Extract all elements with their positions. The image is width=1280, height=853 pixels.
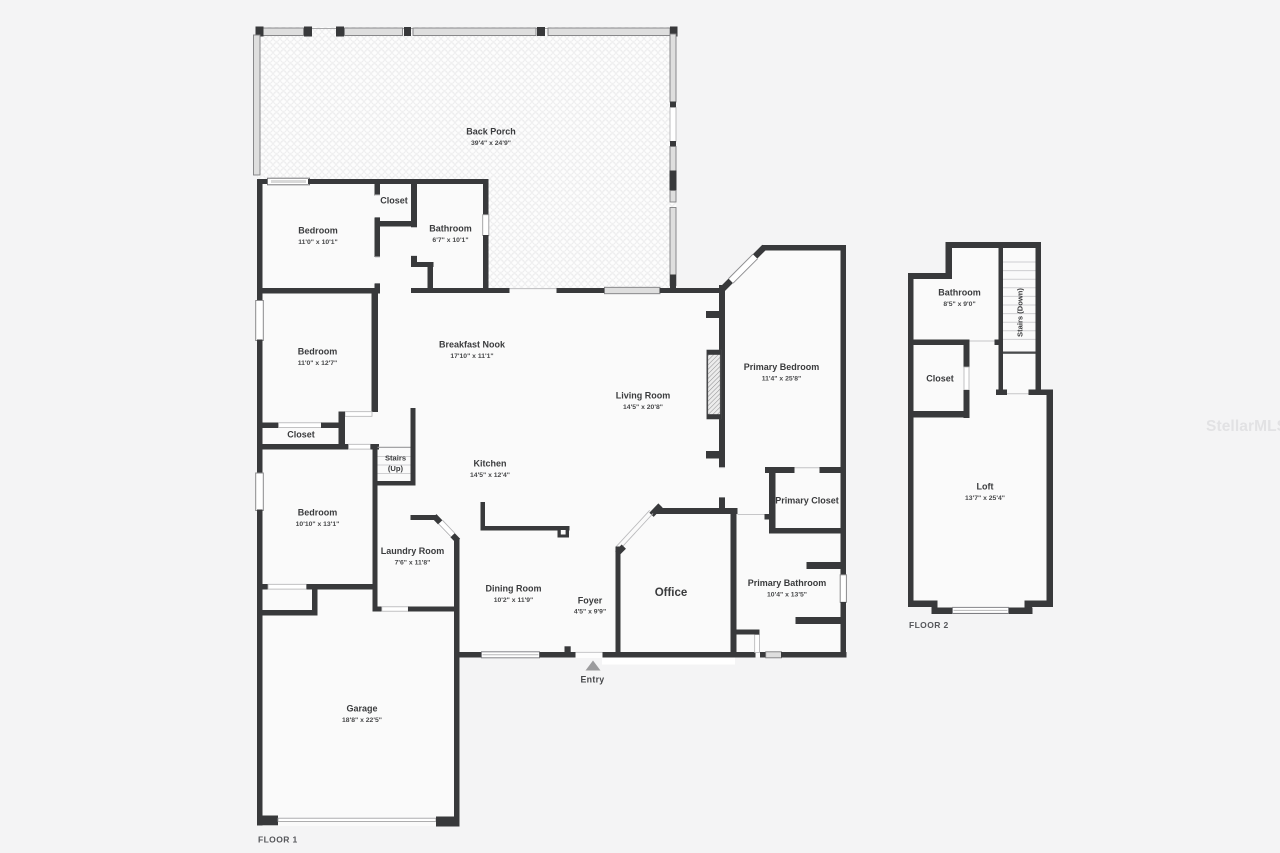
svg-text:Loft: Loft <box>977 482 994 492</box>
svg-text:14'5" x 12'4": 14'5" x 12'4" <box>470 472 510 479</box>
svg-text:10'4" x 13'5": 10'4" x 13'5" <box>767 592 807 599</box>
svg-text:11'0" x 10'1": 11'0" x 10'1" <box>298 239 338 246</box>
svg-text:Entry: Entry <box>581 675 605 685</box>
svg-text:Primary Bathroom: Primary Bathroom <box>748 578 827 588</box>
svg-text:18'8" x 22'5": 18'8" x 22'5" <box>342 717 382 724</box>
svg-text:39'4" x 24'9": 39'4" x 24'9" <box>471 140 511 147</box>
svg-text:17'10" x 11'1": 17'10" x 11'1" <box>450 353 493 360</box>
svg-text:FLOOR 1: FLOOR 1 <box>258 835 298 845</box>
svg-text:Office: Office <box>655 587 688 599</box>
svg-text:Bathroom: Bathroom <box>429 224 472 234</box>
svg-text:Foyer: Foyer <box>578 596 603 606</box>
svg-text:Closet: Closet <box>926 374 954 384</box>
svg-text:Bedroom: Bedroom <box>298 508 338 518</box>
svg-text:Bedroom: Bedroom <box>298 226 338 236</box>
svg-text:Living Room: Living Room <box>616 391 671 401</box>
svg-text:Bathroom: Bathroom <box>938 288 981 298</box>
svg-text:Garage: Garage <box>346 704 377 714</box>
svg-text:Back Porch: Back Porch <box>466 127 516 137</box>
svg-text:StellarMLS: StellarMLS <box>1206 418 1280 435</box>
svg-text:10'2" x 11'9": 10'2" x 11'9" <box>494 597 534 604</box>
svg-text:Breakfast Nook: Breakfast Nook <box>439 340 506 350</box>
svg-text:14'5" x 20'8": 14'5" x 20'8" <box>623 404 663 411</box>
svg-text:11'4" x 25'8": 11'4" x 25'8" <box>762 376 802 383</box>
svg-text:Bedroom: Bedroom <box>298 347 338 357</box>
svg-text:7'6" x 11'8": 7'6" x 11'8" <box>395 560 431 567</box>
svg-text:Dining Room: Dining Room <box>486 584 542 594</box>
svg-text:Kitchen: Kitchen <box>473 459 506 469</box>
svg-text:Stairs: Stairs <box>385 454 406 463</box>
svg-text:8'5" x 9'0": 8'5" x 9'0" <box>943 301 975 308</box>
svg-text:Primary Bedroom: Primary Bedroom <box>744 362 820 372</box>
svg-text:FLOOR 2: FLOOR 2 <box>909 620 949 630</box>
svg-text:6'7" x 10'1": 6'7" x 10'1" <box>432 237 468 244</box>
svg-text:13'7" x 25'4": 13'7" x 25'4" <box>965 495 1005 502</box>
svg-text:Laundry Room: Laundry Room <box>381 546 445 556</box>
svg-text:4'5" x 9'9": 4'5" x 9'9" <box>574 609 606 616</box>
svg-text:Closet: Closet <box>287 430 315 440</box>
svg-text:(Up): (Up) <box>388 464 404 473</box>
svg-text:11'0" x 12'7": 11'0" x 12'7" <box>298 360 338 367</box>
svg-text:Closet: Closet <box>380 196 408 206</box>
svg-text:Stairs (Down): Stairs (Down) <box>1016 288 1025 337</box>
svg-text:10'10" x 13'1": 10'10" x 13'1" <box>296 521 340 528</box>
svg-text:Primary Closet: Primary Closet <box>775 496 839 506</box>
